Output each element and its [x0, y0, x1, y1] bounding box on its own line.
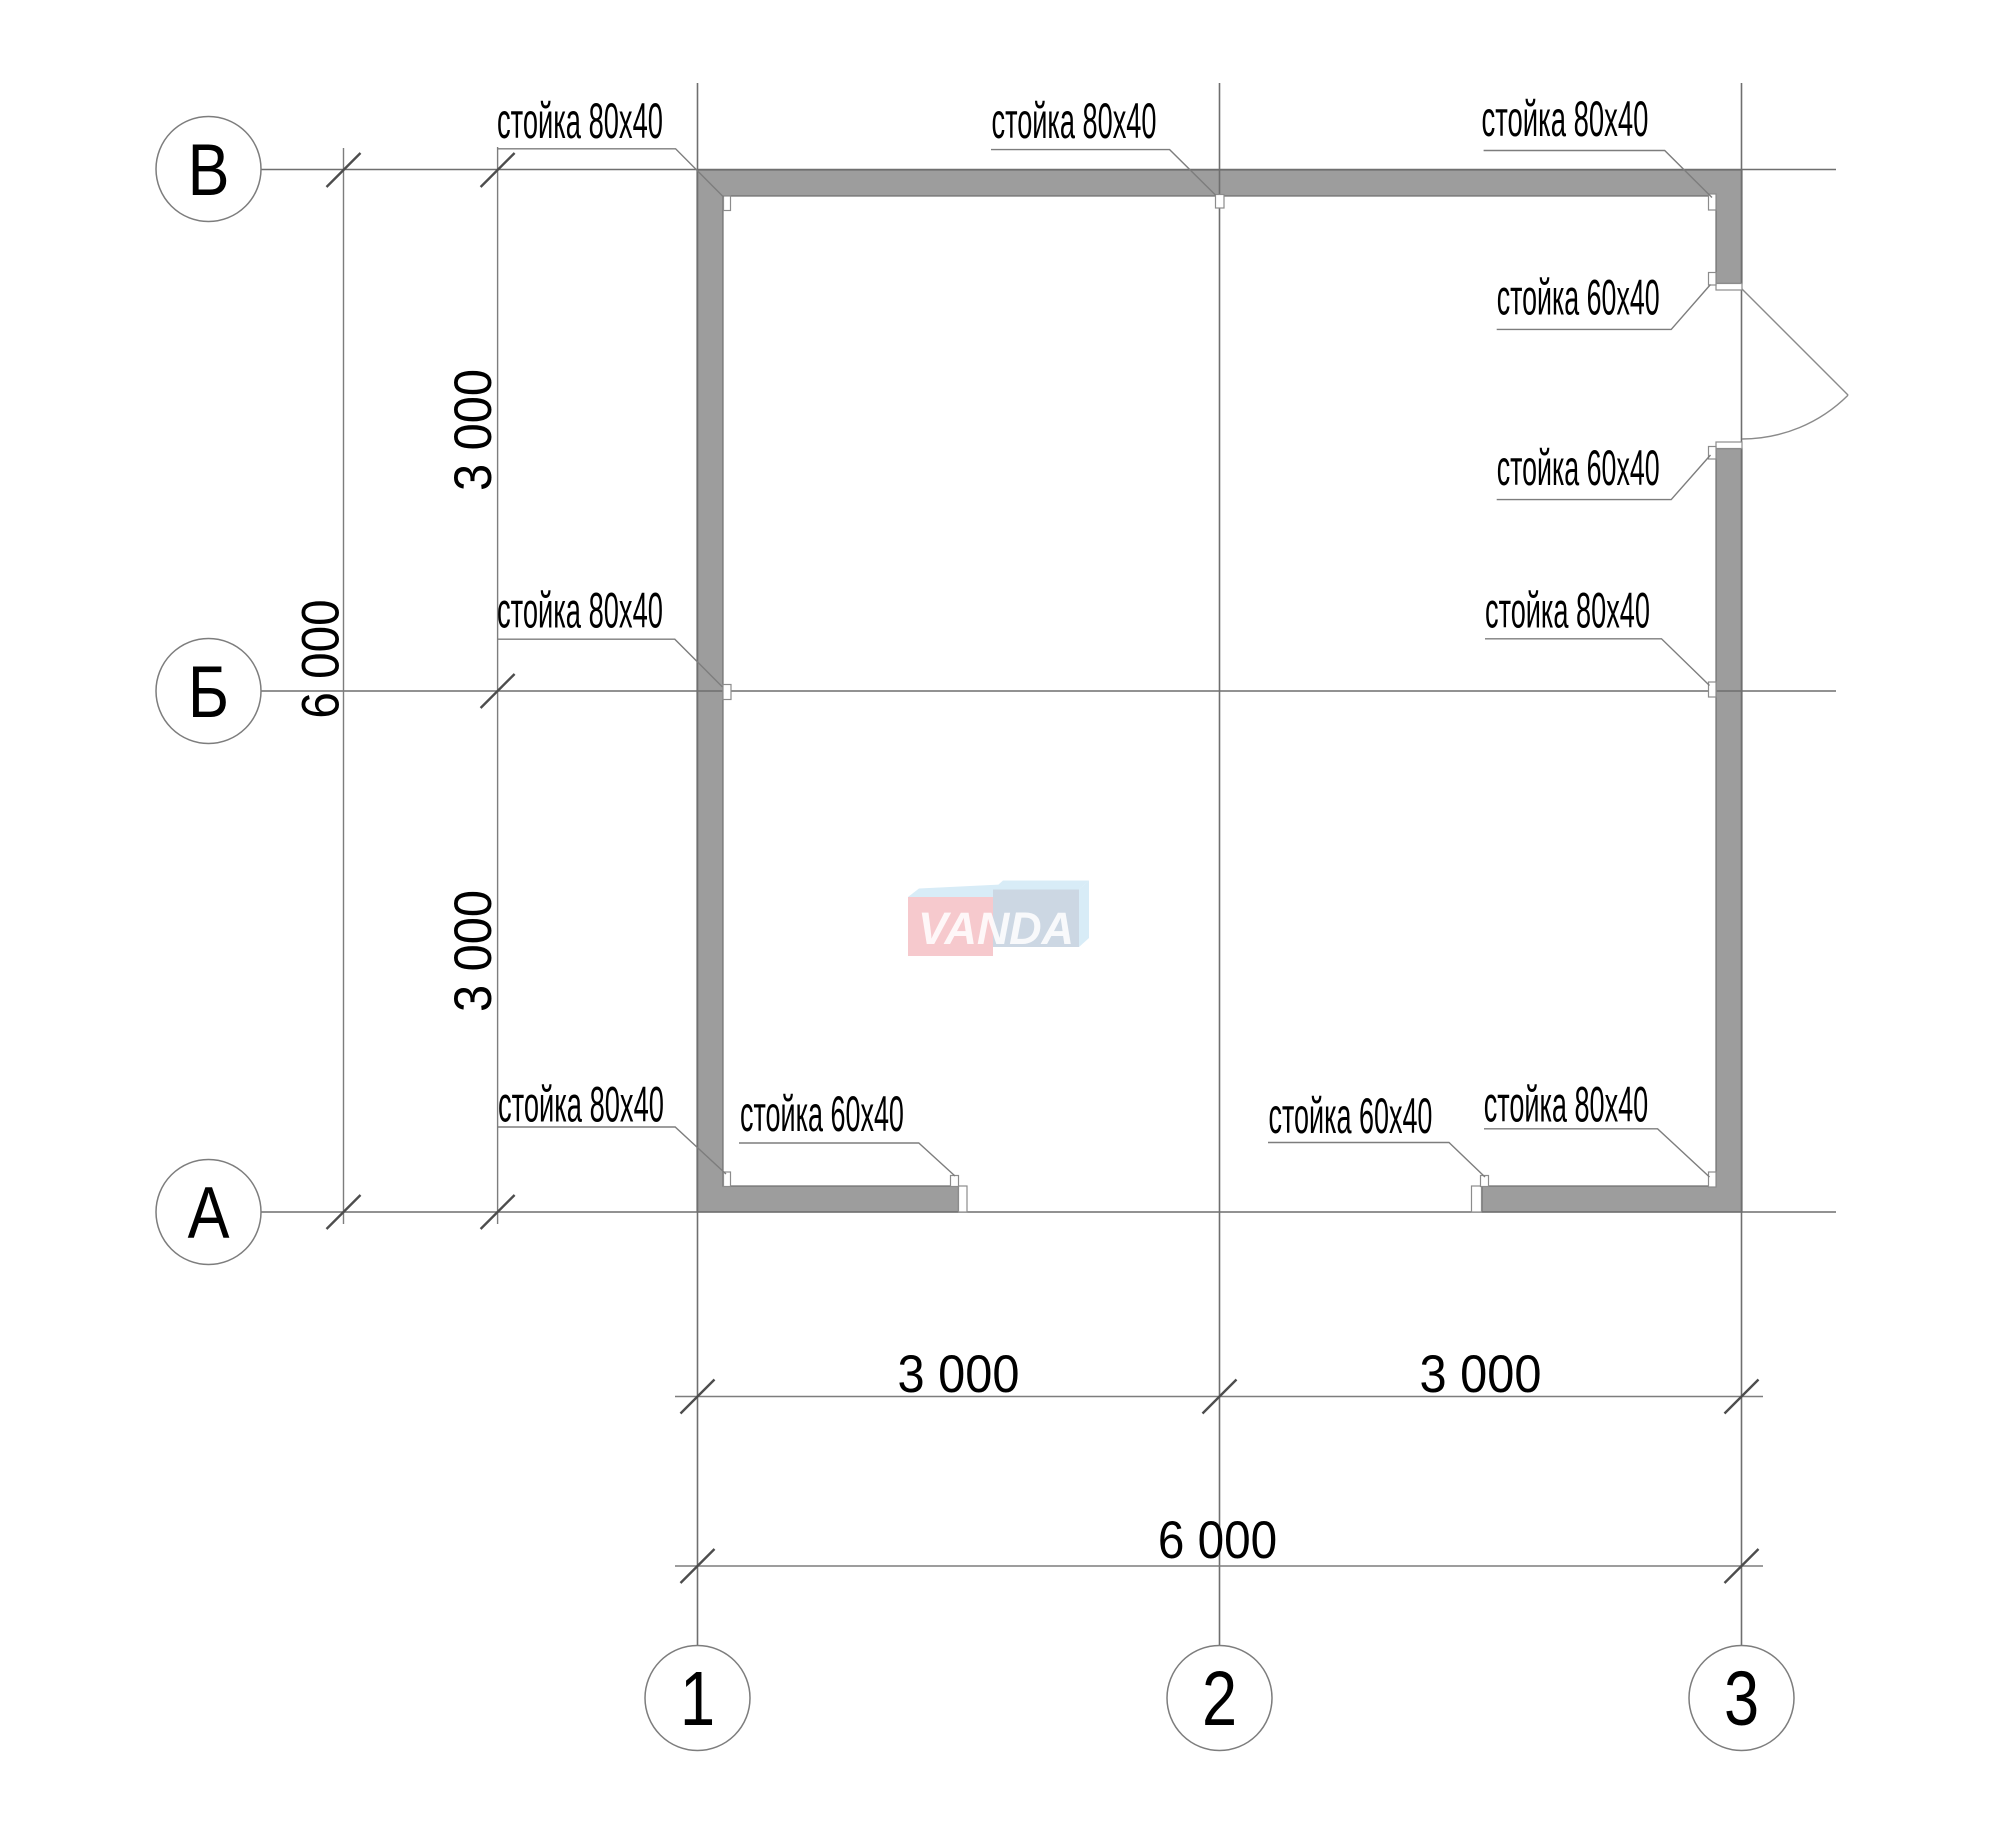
svg-text:3 000: 3 000	[443, 890, 502, 1012]
svg-text:стойка 80х40: стойка 80х40	[497, 583, 663, 639]
svg-text:3: 3	[1724, 1655, 1759, 1741]
svg-text:стойка 80х40: стойка 80х40	[497, 93, 663, 149]
svg-text:2: 2	[1202, 1655, 1237, 1741]
svg-text:стойка 60х40: стойка 60х40	[1269, 1088, 1433, 1144]
svg-text:В: В	[188, 130, 230, 211]
svg-text:3 000: 3 000	[1420, 1344, 1542, 1403]
svg-text:3 000: 3 000	[443, 369, 502, 491]
svg-text:6 000: 6 000	[1158, 1510, 1277, 1570]
svg-text:стойка 60х40: стойка 60х40	[1497, 441, 1660, 496]
svg-text:стойка 80х40: стойка 80х40	[498, 1077, 664, 1133]
svg-text:VANDA: VANDA	[918, 903, 1074, 954]
svg-text:стойка 60х40: стойка 60х40	[1497, 271, 1660, 326]
svg-text:1: 1	[680, 1655, 715, 1741]
svg-text:стойка 80х40: стойка 80х40	[992, 93, 1157, 149]
svg-text:стойка 80х40: стойка 80х40	[1485, 583, 1650, 639]
svg-text:Б: Б	[188, 652, 229, 733]
svg-text:3 000: 3 000	[898, 1344, 1020, 1403]
svg-text:А: А	[188, 1173, 230, 1254]
svg-text:стойка 60х40: стойка 60х40	[740, 1086, 904, 1142]
svg-text:стойка 80х40: стойка 80х40	[1484, 1077, 1649, 1133]
svg-text:стойка 80х40: стойка 80х40	[1482, 90, 1649, 147]
svg-text:6 000: 6 000	[290, 599, 350, 718]
